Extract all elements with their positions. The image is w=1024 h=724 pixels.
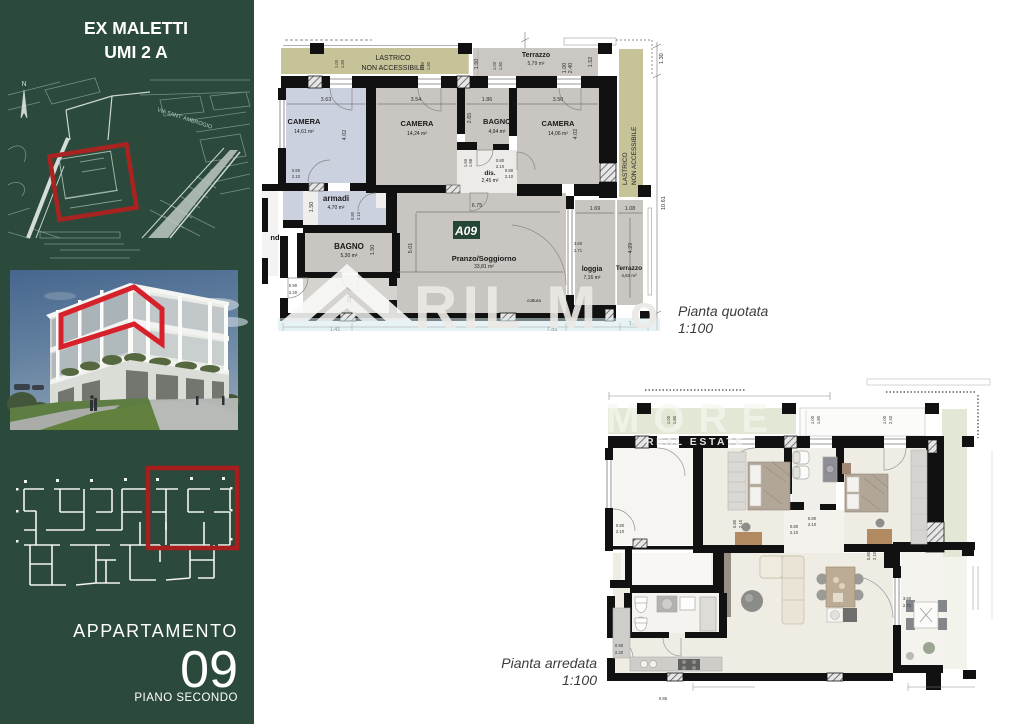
svg-text:NON ACCESSIBILE: NON ACCESSIBILE xyxy=(631,126,638,185)
svg-text:1.00: 1.00 xyxy=(334,59,339,68)
svg-text:dis.: dis. xyxy=(484,170,495,177)
svg-text:1.80: 1.80 xyxy=(426,61,431,70)
svg-text:1.00: 1.00 xyxy=(420,61,425,70)
svg-text:2.40: 2.40 xyxy=(888,415,893,424)
svg-text:1.80: 1.80 xyxy=(498,61,503,70)
svg-text:2.10: 2.10 xyxy=(356,211,361,220)
svg-text:1.00: 1.00 xyxy=(882,415,887,424)
svg-text:2.10: 2.10 xyxy=(872,551,877,560)
svg-text:EX MALETTI: EX MALETTI xyxy=(84,18,188,38)
svg-text:3.60: 3.60 xyxy=(574,241,583,246)
svg-text:N: N xyxy=(21,81,26,88)
svg-text:1.30: 1.30 xyxy=(659,53,665,64)
svg-text:0.80: 0.80 xyxy=(732,519,737,528)
svg-text:2.40: 2.40 xyxy=(568,63,574,74)
svg-text:1.98: 1.98 xyxy=(468,158,473,167)
svg-text:2.10: 2.10 xyxy=(505,174,514,179)
svg-text:0.80: 0.80 xyxy=(292,168,301,173)
svg-text:5.01: 5.01 xyxy=(408,243,414,254)
svg-text:1.50: 1.50 xyxy=(309,202,315,213)
svg-text:CAMERA: CAMERA xyxy=(288,117,321,126)
svg-text:0.80: 0.80 xyxy=(616,523,625,528)
svg-text:33,81 m²: 33,81 m² xyxy=(474,264,494,270)
svg-text:APPARTAMENTO: APPARTAMENTO xyxy=(73,621,238,641)
svg-text:0.80: 0.80 xyxy=(866,551,871,560)
svg-text:2.10: 2.10 xyxy=(616,529,625,534)
svg-text:UMI 2 A: UMI 2 A xyxy=(104,42,168,62)
svg-text:4,63 m²: 4,63 m² xyxy=(621,273,637,278)
svg-text:1.80: 1.80 xyxy=(672,415,677,424)
svg-text:2.20: 2.20 xyxy=(615,650,624,655)
svg-text:2.20: 2.20 xyxy=(289,290,298,295)
svg-text:0.80: 0.80 xyxy=(496,158,505,163)
svg-text:A09: A09 xyxy=(454,224,477,238)
svg-text:1.08: 1.08 xyxy=(625,206,636,212)
svg-text:loggia: loggia xyxy=(582,266,603,273)
svg-text:3.60: 3.60 xyxy=(903,596,912,601)
svg-text:Terrazzo: Terrazzo xyxy=(522,52,550,59)
svg-text:3.63: 3.63 xyxy=(321,97,332,103)
svg-text:0.80: 0.80 xyxy=(350,211,355,220)
svg-text:14,24 m²: 14,24 m² xyxy=(407,131,427,137)
svg-text:Pianta arredata: Pianta arredata xyxy=(501,655,597,671)
svg-text:4,94 m²: 4,94 m² xyxy=(489,129,506,135)
svg-text:1:100: 1:100 xyxy=(562,672,597,688)
svg-text:1.52: 1.52 xyxy=(588,57,594,68)
svg-text:4,70 m²: 4,70 m² xyxy=(328,205,345,211)
svg-text:REAL ESTATE: REAL ESTATE xyxy=(646,436,745,448)
svg-text:0.90: 0.90 xyxy=(615,643,624,648)
svg-text:1.50: 1.50 xyxy=(370,245,376,256)
svg-text:0.86: 0.86 xyxy=(659,696,668,701)
svg-text:1.00: 1.00 xyxy=(810,415,815,424)
svg-text:MORE: MORE xyxy=(606,397,782,441)
svg-text:4.02: 4.02 xyxy=(342,130,348,141)
svg-text:2,45 m²: 2,45 m² xyxy=(482,178,499,184)
svg-text:1.80: 1.80 xyxy=(816,415,821,424)
svg-text:4.29: 4.29 xyxy=(628,243,634,254)
svg-text:3.50: 3.50 xyxy=(553,97,564,103)
svg-text:PIANO SECONDO: PIANO SECONDO xyxy=(134,692,238,704)
svg-text:1:100: 1:100 xyxy=(678,320,713,336)
svg-text:0.80: 0.80 xyxy=(808,516,817,521)
svg-text:1.69: 1.69 xyxy=(590,206,601,212)
svg-text:Pranzo/Soggiorno: Pranzo/Soggiorno xyxy=(452,254,517,263)
svg-text:0.90: 0.90 xyxy=(289,283,298,288)
svg-text:o: o xyxy=(630,286,658,338)
svg-text:3.54: 3.54 xyxy=(411,97,422,103)
svg-text:5,30 m²: 5,30 m² xyxy=(341,253,358,259)
svg-text:1.00: 1.00 xyxy=(666,415,671,424)
svg-text:armadi: armadi xyxy=(323,194,349,203)
svg-text:nd.: nd. xyxy=(270,233,281,242)
svg-text:Pianta quotata: Pianta quotata xyxy=(678,303,769,319)
svg-text:CAMERA: CAMERA xyxy=(401,119,434,128)
svg-text:1.00: 1.00 xyxy=(492,61,497,70)
svg-text:1.50: 1.50 xyxy=(474,59,480,70)
svg-text:14,61 m²: 14,61 m² xyxy=(294,129,314,135)
svg-text:2.10: 2.10 xyxy=(738,519,743,528)
svg-text:CAMERA: CAMERA xyxy=(542,119,575,128)
svg-text:LASTRICO: LASTRICO xyxy=(622,152,629,185)
svg-text:BAGNO: BAGNO xyxy=(483,117,511,126)
svg-text:2.71: 2.71 xyxy=(903,603,912,608)
svg-text:BAGNO: BAGNO xyxy=(334,242,364,251)
svg-text:1.80: 1.80 xyxy=(340,59,345,68)
svg-text:10.61: 10.61 xyxy=(661,196,667,210)
svg-text:14,06 m²: 14,06 m² xyxy=(548,131,568,137)
svg-text:2.10: 2.10 xyxy=(496,164,505,169)
svg-text:5,79 m²: 5,79 m² xyxy=(528,61,545,67)
svg-text:2.71: 2.71 xyxy=(574,248,583,253)
svg-text:0.80: 0.80 xyxy=(505,168,514,173)
svg-text:1.86: 1.86 xyxy=(482,97,493,103)
svg-text:4.02: 4.02 xyxy=(573,129,579,140)
svg-text:2.10: 2.10 xyxy=(808,522,817,527)
svg-text:2.10: 2.10 xyxy=(292,174,301,179)
svg-text:Terrazzo: Terrazzo xyxy=(616,265,642,272)
svg-text:RIL M: RIL M xyxy=(414,274,601,341)
svg-text:6.75: 6.75 xyxy=(472,203,483,209)
svg-text:NON ACCESSIBILE: NON ACCESSIBILE xyxy=(361,65,424,72)
svg-text:2.10: 2.10 xyxy=(790,530,799,535)
svg-text:09: 09 xyxy=(180,641,238,699)
svg-text:2.65: 2.65 xyxy=(467,113,473,124)
svg-text:LASTRICO: LASTRICO xyxy=(375,55,411,62)
svg-text:0.80: 0.80 xyxy=(790,524,799,529)
